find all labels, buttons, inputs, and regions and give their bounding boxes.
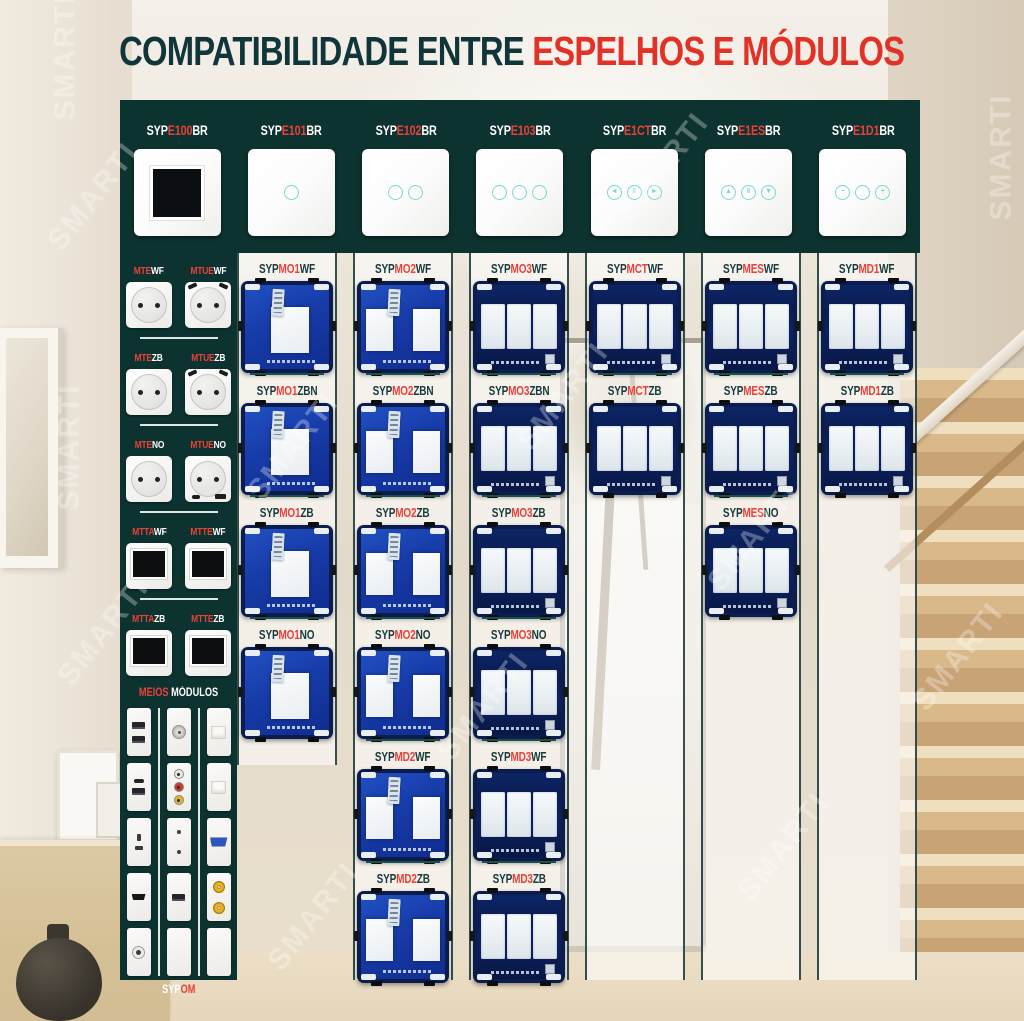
product-label: MTEZB xyxy=(135,352,163,364)
socket-usb-bottom-image xyxy=(185,456,231,502)
product-label: MTEWF xyxy=(134,265,164,277)
half-module-tv-coax xyxy=(167,708,191,756)
label-segment: WF xyxy=(151,265,164,277)
espelhos-header-band: SYPE100BRSYPE101BRSYPE102BRSYPE103BRSYPE… xyxy=(120,100,920,253)
espelho-label: SYPE101BR xyxy=(261,123,322,138)
half-module-blank xyxy=(167,928,191,976)
sidebar-row: MTTAWFMTTEWF xyxy=(120,522,237,589)
divider xyxy=(140,337,218,339)
half-module-rj45 xyxy=(207,763,231,811)
hdmi-port-icon xyxy=(132,894,146,900)
product-label: MTTEZB xyxy=(191,613,224,625)
meios-modulos-title: MEIOS MÓDULOS xyxy=(139,687,218,699)
dot-icon xyxy=(177,830,181,834)
espelho-label: SYPE1CTBR xyxy=(603,123,666,138)
socket-image xyxy=(126,282,172,328)
meios-column xyxy=(120,708,158,976)
pin-slot-icon xyxy=(135,846,143,850)
touch-buttons xyxy=(492,185,547,200)
sidebar-product: MTTAWF xyxy=(124,522,174,589)
label-segment: ZB xyxy=(152,352,163,364)
label-segment: MÓDULOS xyxy=(169,687,219,699)
product-label: MTTAZB xyxy=(133,613,166,625)
rj45-keystone-icon xyxy=(211,726,226,739)
label-segment: BR xyxy=(421,123,436,138)
usbc-port-icon xyxy=(192,495,200,499)
espelho-label: SYPE100BR xyxy=(147,123,208,138)
touch-buttons: −+ xyxy=(835,185,890,200)
thermostat-screen-icon xyxy=(192,638,224,664)
meios-column xyxy=(198,708,238,976)
usb-slot-icon xyxy=(219,369,229,376)
label-segment: ZB xyxy=(155,613,166,625)
product-label: MTTEWF xyxy=(191,526,226,538)
sidebar-product: MTEWF xyxy=(124,261,174,328)
usb-slot-icon xyxy=(188,282,198,289)
label-segment: E100 xyxy=(168,123,193,138)
thermostat-image xyxy=(126,543,172,589)
background-art-canvas xyxy=(6,338,48,556)
socket-round-icon xyxy=(190,461,226,497)
product-label: MTUEWF xyxy=(190,265,226,277)
socket-usb-top-image xyxy=(185,282,231,328)
label-segment: MTTA xyxy=(132,526,154,538)
half-module-blank xyxy=(207,928,231,976)
touch-circle-icon xyxy=(512,185,527,200)
sidebar-product: MTUENO xyxy=(183,435,233,502)
label-segment: NO xyxy=(151,439,163,451)
label-segment: E1D1 xyxy=(853,123,879,138)
socket-round-icon xyxy=(131,374,167,410)
pin-slot-icon xyxy=(137,834,141,841)
label-segment: WF xyxy=(213,265,226,277)
socket-usb-top-image xyxy=(185,369,231,415)
page-title: COMPATIBILIDADE ENTRE ESPELHOS E MÓDULOS xyxy=(0,28,1024,75)
half-module-usb-single xyxy=(167,873,191,921)
title-dark-part: COMPATIBILIDADE ENTRE xyxy=(119,28,524,74)
thermostat-image xyxy=(126,630,172,676)
sidebar-product: MTTAZB xyxy=(124,609,174,676)
espelho-label: SYPE1ESBR xyxy=(717,123,780,138)
divider xyxy=(140,424,218,426)
coax-connector-icon xyxy=(172,725,186,739)
espelho-e1ct: SYPE1CTBR◄‖► xyxy=(577,100,691,253)
sypom-label: SYPOM xyxy=(162,984,195,996)
usbc-port-icon xyxy=(134,779,144,783)
faceplate-shutter: ▲‖▼ xyxy=(705,149,792,236)
label-segment: SYP xyxy=(147,123,168,138)
label-segment: BR xyxy=(192,123,207,138)
half-module-audio-jack xyxy=(127,928,151,976)
usb-slot-icon xyxy=(188,369,198,376)
sidebar-product: MTTEWF xyxy=(183,522,233,589)
background-framed-art xyxy=(0,328,63,568)
sat-connector-icon xyxy=(213,902,225,914)
label-segment: MTUE xyxy=(191,352,214,364)
usba-port-icon xyxy=(215,494,226,499)
touch-buttons: ◄‖► xyxy=(607,185,662,200)
half-module-hdmi xyxy=(127,873,151,921)
label-segment: ZB xyxy=(214,613,225,625)
socket-round-icon xyxy=(131,287,167,323)
label-segment: BR xyxy=(879,123,894,138)
touch-buttons: ▲‖▼ xyxy=(721,185,776,200)
label-segment: BR xyxy=(651,123,666,138)
label-segment: E101 xyxy=(282,123,307,138)
espelho-e1d1: SYPE1D1BR−+ xyxy=(806,100,920,253)
socket-round-icon xyxy=(131,461,167,497)
label-segment: MTTA xyxy=(133,613,155,625)
label-segment: SYP xyxy=(261,123,282,138)
socket-rows: MTEWFMTUEWFMTEZBMTUEZBMTENOMTUENOMTTAWFM… xyxy=(120,253,237,676)
socket-round-icon xyxy=(190,287,226,323)
divider xyxy=(140,598,218,600)
espelho-e101: SYPE101BR xyxy=(234,100,348,253)
dimmer-circle-icon xyxy=(855,185,870,200)
socket-image xyxy=(126,456,172,502)
thermostat-screen-icon xyxy=(133,551,165,577)
product-label: MTUEZB xyxy=(191,352,225,364)
espelho-e103: SYPE103BR xyxy=(463,100,577,253)
half-module-rj45 xyxy=(207,708,231,756)
shutter-circle-icon: ‖ xyxy=(741,185,756,200)
touch-buttons xyxy=(284,185,299,200)
half-module-socket-2pin xyxy=(127,818,151,866)
sidebar-row: MTEWFMTUEWF xyxy=(120,261,237,328)
half-module-usbc-usba xyxy=(127,763,151,811)
label-segment: SYP xyxy=(375,123,396,138)
label-segment: WF xyxy=(213,526,226,538)
sidebar-product: MTUEZB xyxy=(183,348,233,415)
espelho-label: SYPE103BR xyxy=(489,123,550,138)
background-vase xyxy=(16,938,102,1021)
usb-port-icon xyxy=(132,722,145,729)
half-module-dots-2 xyxy=(167,818,191,866)
label-segment: MTTE xyxy=(191,526,213,538)
meios-modulos-grid xyxy=(120,708,237,976)
label-segment: MTUE xyxy=(190,439,213,451)
socket-round-icon xyxy=(190,374,226,410)
touch-circle-icon xyxy=(388,185,403,200)
sidebar-product: MTENO xyxy=(124,435,174,502)
thermostat-image xyxy=(185,543,231,589)
shutter-circle-icon: ▲ xyxy=(721,185,736,200)
label-segment: WF xyxy=(153,526,166,538)
dimmer-circle-icon: + xyxy=(875,185,890,200)
label-segment: MEIOS xyxy=(139,687,169,699)
divider xyxy=(140,511,218,513)
label-segment: SYP xyxy=(603,123,624,138)
shutter-circle-icon: ▼ xyxy=(761,185,776,200)
curtain-circle-icon: ◄ xyxy=(607,185,622,200)
espelho-e1es: SYPE1ESBR▲‖▼ xyxy=(691,100,805,253)
label-segment: MTE xyxy=(134,265,151,277)
touch-circle-icon xyxy=(284,185,299,200)
usb-port-icon xyxy=(172,894,185,901)
thermostat-screen-icon xyxy=(133,638,165,664)
espelho-label: SYPE102BR xyxy=(375,123,436,138)
usb-slot-icon xyxy=(219,282,229,289)
rca-white-icon xyxy=(174,769,184,779)
touch-circle-icon xyxy=(408,185,423,200)
rca-red-icon xyxy=(174,782,184,792)
label-segment: BR xyxy=(307,123,322,138)
rca-yellow-icon xyxy=(174,795,184,805)
curtain-circle-icon: ‖ xyxy=(627,185,642,200)
sidebar-product: MTTEZB xyxy=(183,609,233,676)
sidebar-product: MTEZB xyxy=(124,348,174,415)
usb-port-icon xyxy=(132,736,145,743)
thermostat-screen-icon xyxy=(192,551,224,577)
dimmer-circle-icon: − xyxy=(835,185,850,200)
label-segment: E1CT xyxy=(624,123,651,138)
label-segment: SYP xyxy=(489,123,510,138)
label-segment: ZB xyxy=(214,352,225,364)
espelho-e100: SYPE100BR xyxy=(120,100,234,253)
label-segment: OM xyxy=(180,984,195,996)
label-segment: SYP xyxy=(831,123,852,138)
half-module-usb-double xyxy=(127,708,151,756)
sidebar-row: MTEZBMTUEZB xyxy=(120,348,237,415)
sidebar-panel: MTEWFMTUEWFMTEZBMTUEZBMTENOMTUENOMTTAWFM… xyxy=(120,253,237,980)
label-segment: E1ES xyxy=(738,123,765,138)
audio-jack-icon xyxy=(132,946,145,959)
faceplate-touch-2 xyxy=(362,149,449,236)
usb-port-icon xyxy=(132,788,145,795)
label-segment: MTTE xyxy=(191,613,213,625)
product-label: MTTAWF xyxy=(132,526,166,538)
label-segment: E102 xyxy=(396,123,421,138)
title-red-part: ESPELHOS E MÓDULOS xyxy=(533,28,905,74)
faceplate-dimmer: −+ xyxy=(819,149,906,236)
product-label: MTENO xyxy=(134,439,164,451)
compatibility-poster: COMPATIBILIDADE ENTRE ESPELHOS E MÓDULOS… xyxy=(0,0,1024,1021)
frame-opening-icon xyxy=(150,166,204,220)
touch-circle-icon xyxy=(532,185,547,200)
label-segment: E103 xyxy=(511,123,536,138)
label-segment: MTUE xyxy=(190,265,213,277)
product-label: MTUENO xyxy=(190,439,225,451)
faceplate-touch-1 xyxy=(248,149,335,236)
label-segment: BR xyxy=(535,123,550,138)
touch-buttons xyxy=(388,185,423,200)
label-segment: BR xyxy=(765,123,780,138)
half-module-vga xyxy=(207,818,231,866)
label-segment: SYP xyxy=(162,984,180,996)
curtain-circle-icon: ► xyxy=(647,185,662,200)
page-title-text: COMPATIBILIDADE ENTRE ESPELHOS E MÓDULOS xyxy=(119,28,904,75)
espelho-label: SYPE1D1BR xyxy=(831,123,894,138)
label-segment: SYP xyxy=(717,123,738,138)
label-segment: MTE xyxy=(135,352,152,364)
touch-circle-icon xyxy=(492,185,507,200)
sidebar-row: MTENOMTUENO xyxy=(120,435,237,502)
faceplate-blank-frame xyxy=(134,149,221,236)
rj45-keystone-icon xyxy=(211,781,226,794)
sat-connector-icon xyxy=(213,881,225,893)
vga-port-icon xyxy=(210,837,228,847)
dot-icon xyxy=(177,850,181,854)
faceplate-curtain: ◄‖► xyxy=(591,149,678,236)
meios-column xyxy=(158,708,198,976)
label-segment: NO xyxy=(213,439,225,451)
socket-image xyxy=(126,369,172,415)
faceplate-touch-3 xyxy=(476,149,563,236)
espelho-e102: SYPE102BR xyxy=(349,100,463,253)
sidebar-row: MTTAZBMTTEZB xyxy=(120,609,237,676)
thermostat-image xyxy=(185,630,231,676)
half-module-rca-triple xyxy=(167,763,191,811)
sidebar-product: MTUEWF xyxy=(183,261,233,328)
half-module-sat-double xyxy=(207,873,231,921)
label-segment: MTE xyxy=(134,439,151,451)
